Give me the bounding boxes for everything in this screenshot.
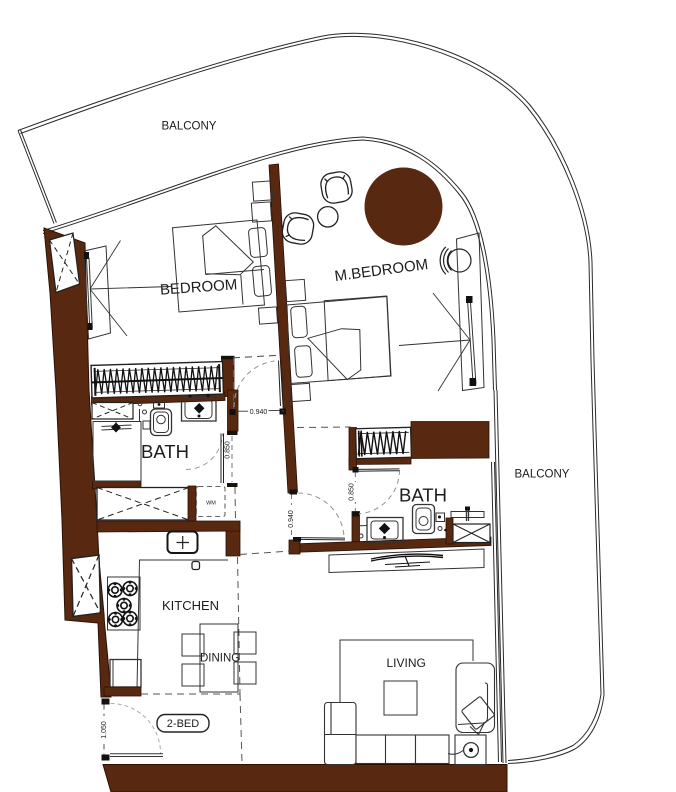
svg-text:BATH: BATH bbox=[141, 441, 189, 462]
svg-text:WM: WM bbox=[206, 501, 216, 507]
svg-text:0.850: 0.850 bbox=[225, 441, 232, 459]
svg-text:BALCONY: BALCONY bbox=[162, 121, 217, 133]
svg-text:0.940: 0.940 bbox=[288, 510, 295, 528]
svg-text:KITCHEN: KITCHEN bbox=[162, 598, 219, 613]
svg-text:LIVING: LIVING bbox=[387, 656, 426, 670]
svg-text:BALCONY: BALCONY bbox=[515, 469, 570, 481]
svg-text:0.940: 0.940 bbox=[250, 409, 268, 416]
svg-text:2-BED: 2-BED bbox=[167, 718, 199, 730]
svg-text:1.050: 1.050 bbox=[101, 721, 108, 739]
svg-text:0.850: 0.850 bbox=[349, 483, 356, 501]
svg-text:BATH: BATH bbox=[399, 485, 447, 506]
